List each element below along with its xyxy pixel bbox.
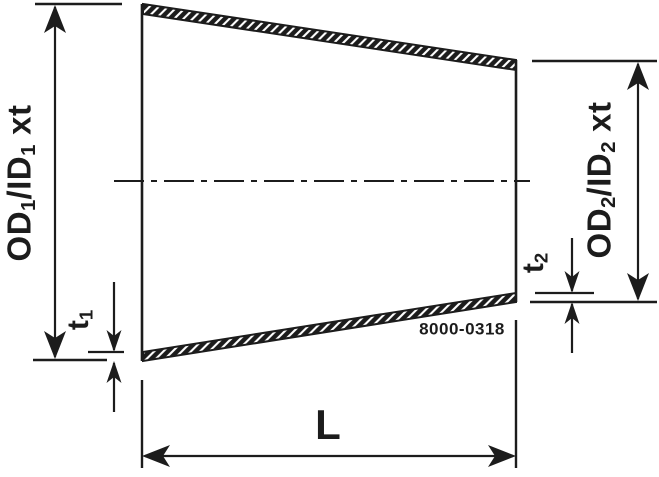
label-subscript: 1 <box>17 200 40 211</box>
label-text: OD <box>580 208 617 259</box>
od1-dimension <box>33 4 122 360</box>
label-text: /ID <box>580 153 617 197</box>
label-text: t <box>62 320 95 330</box>
label-subscript: 2 <box>530 253 551 263</box>
t1-dimension <box>88 282 124 412</box>
technical-drawing-reducer: OD1/ID1 xt t1 OD2/ID2 xt t2 L 8000-0318 <box>0 0 659 477</box>
label-subscript: 1 <box>17 145 40 156</box>
od1-dimension-label: OD1/ID1 xt <box>2 105 39 262</box>
od2-dimension-label: OD2/ID2 xt <box>582 102 619 259</box>
label-text: xt <box>0 105 37 145</box>
part-number: 8000-0318 <box>419 321 505 338</box>
label-text: /ID <box>0 156 37 200</box>
label-subscript: 2 <box>597 142 620 153</box>
reducer-body <box>114 4 530 361</box>
label-subscript: 1 <box>75 310 96 320</box>
label-text: t <box>517 263 550 273</box>
label-text: xt <box>580 102 617 142</box>
t2-dimension-label: t2 <box>519 253 551 273</box>
t1-dimension-label: t1 <box>64 310 96 330</box>
label-text: OD <box>0 211 37 262</box>
length-dimension-label: L <box>315 404 341 446</box>
top-wall-section <box>143 4 516 70</box>
label-subscript: 2 <box>597 197 620 208</box>
